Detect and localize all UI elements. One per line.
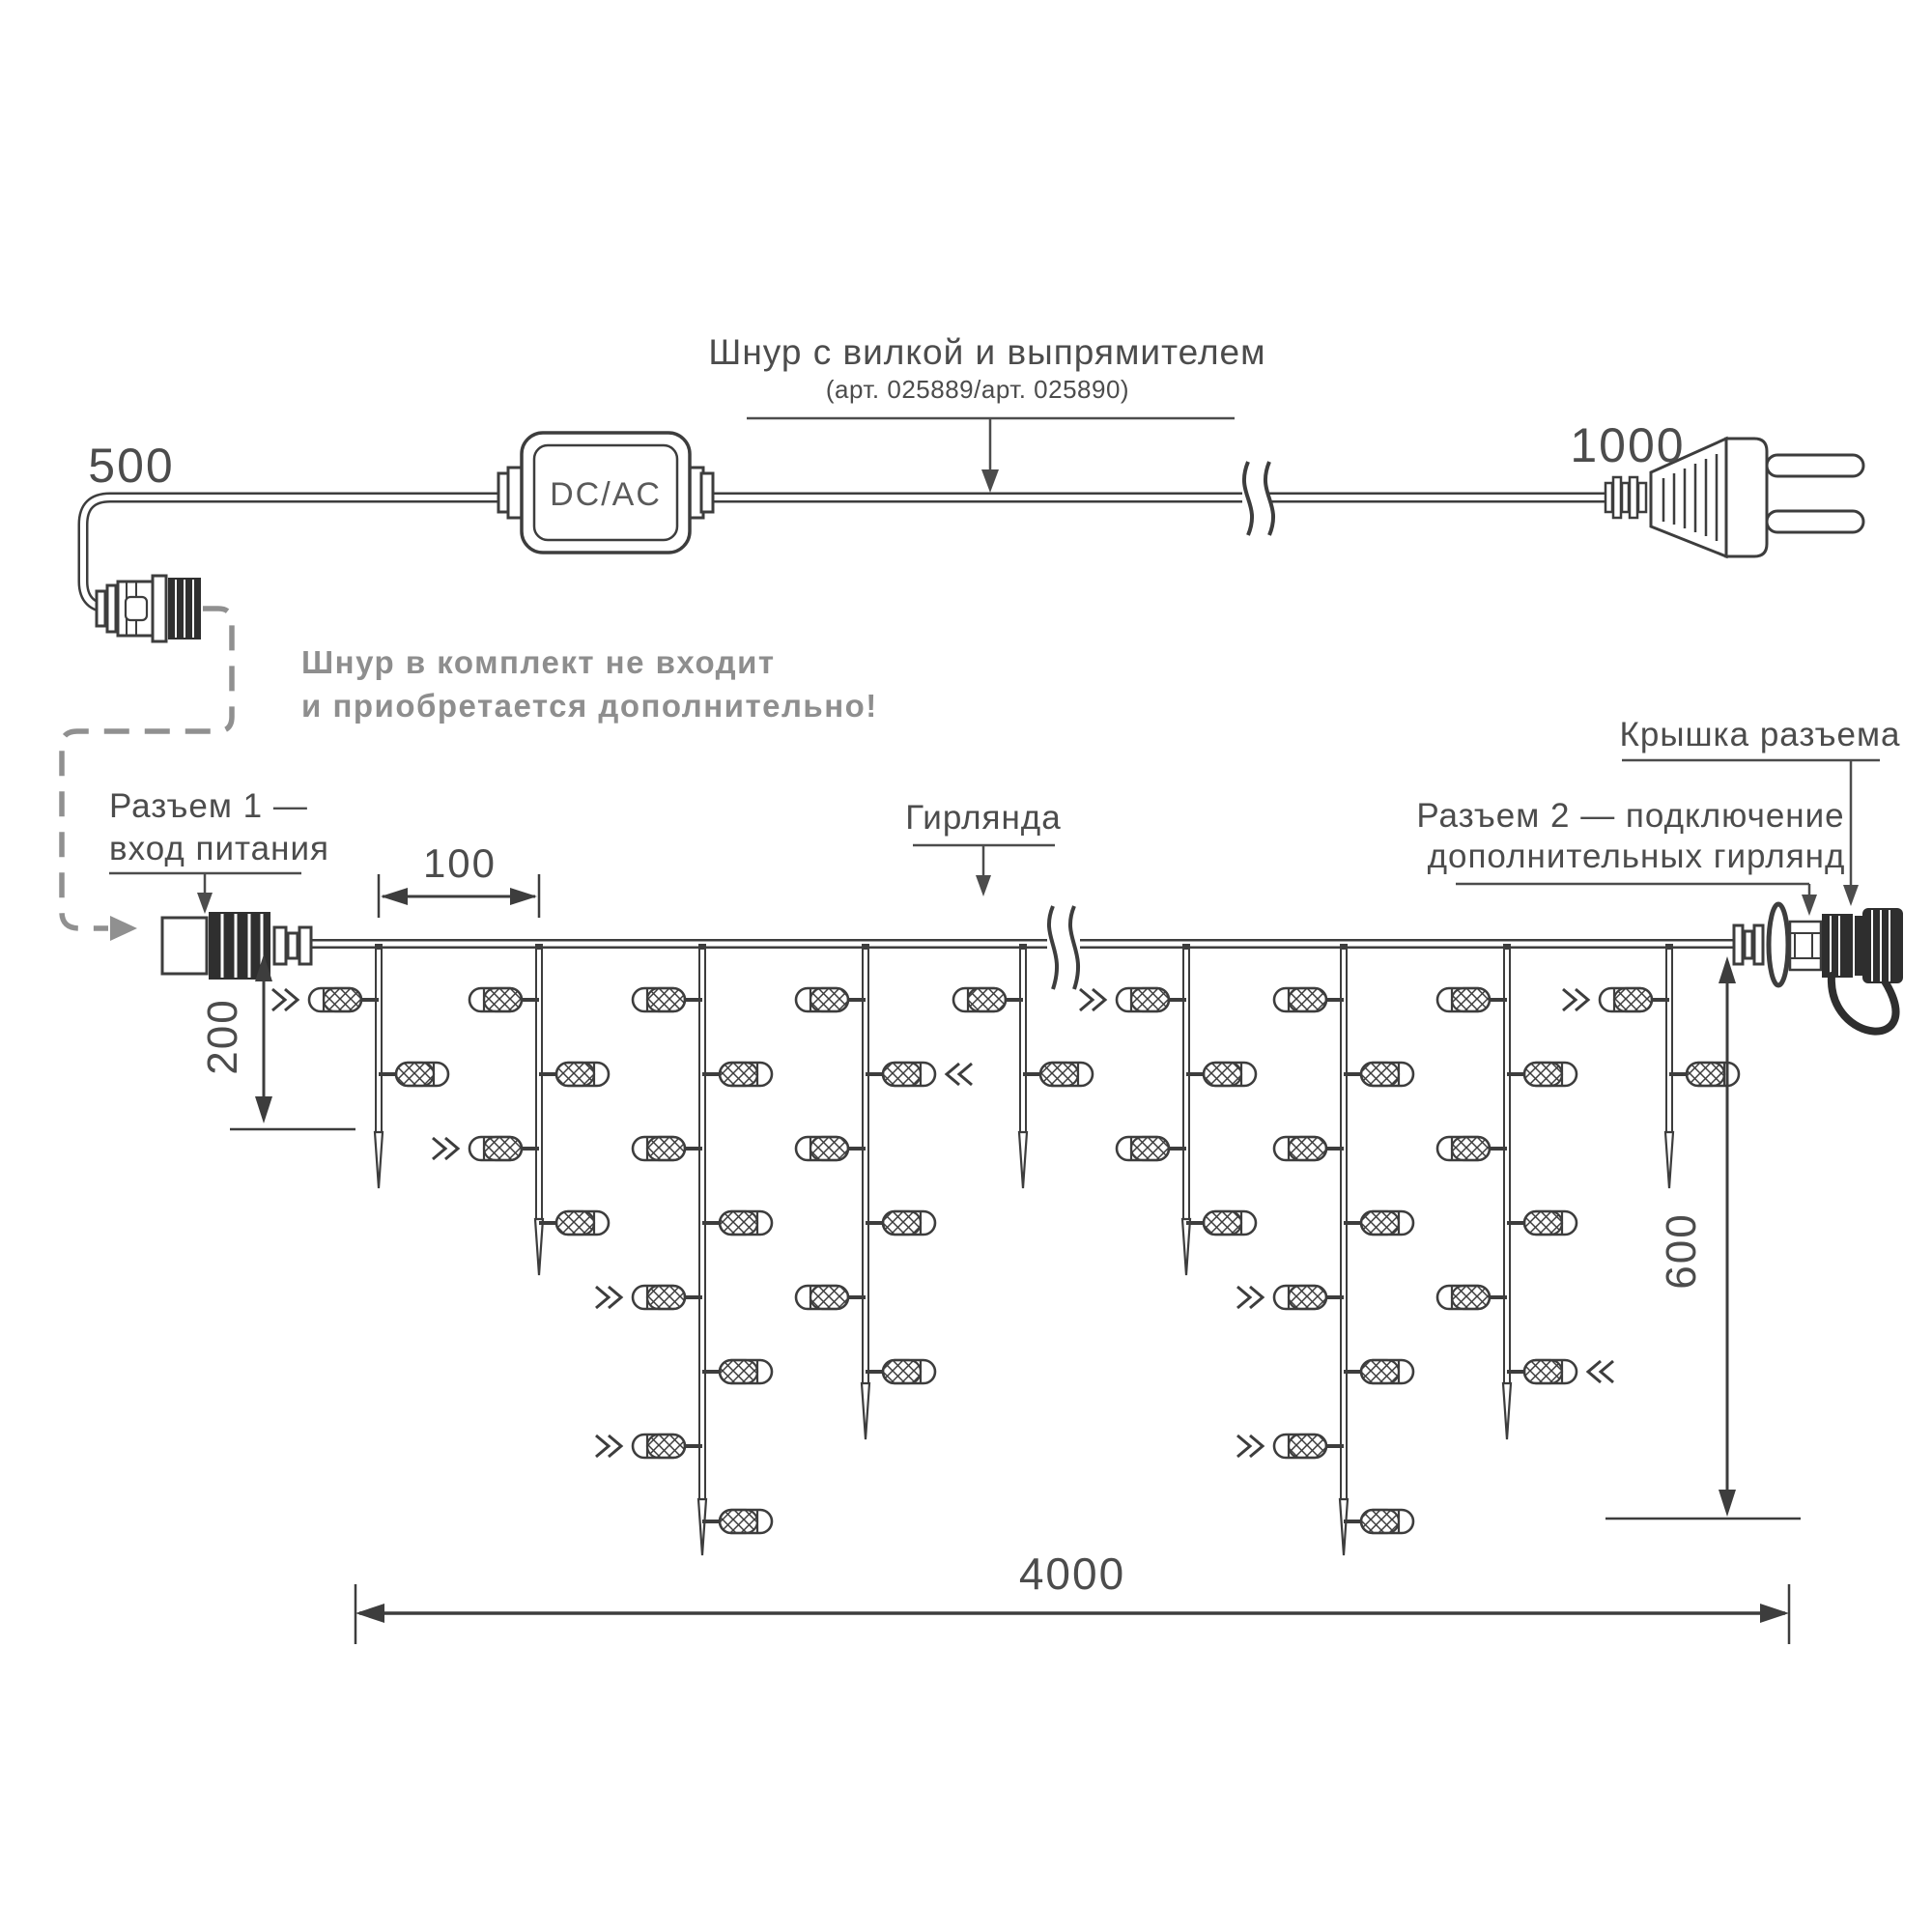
power-cord-assembly: DC/AC [83, 418, 1863, 641]
cord-right-segment [711, 462, 1605, 535]
connector2-label-block: Разъем 2 — подключение дополнительных ги… [1416, 797, 1845, 916]
bulb [1437, 988, 1507, 1011]
bulb [539, 1211, 609, 1235]
drop-tip [535, 1219, 543, 1275]
cord-title: Шнур с вилкой и выпрямителем [708, 332, 1265, 372]
garland-drop [953, 944, 1093, 1188]
garland-drop [1080, 944, 1256, 1275]
connector2-with-cap [1734, 904, 1903, 1032]
bulb [796, 988, 866, 1011]
garland-drops [272, 944, 1739, 1555]
bulb [379, 1063, 448, 1086]
cap-strap [1832, 976, 1896, 1032]
bulb [1437, 1286, 1507, 1309]
cap-label: Крышка разъема [1619, 716, 1900, 753]
bulb [796, 1286, 866, 1309]
dim-600-label: 600 [1658, 1212, 1705, 1289]
drop-tip [1503, 1383, 1511, 1439]
chevron-arrow-icon [1080, 989, 1105, 1010]
drop-tip [375, 1132, 383, 1188]
bulb [1186, 1063, 1256, 1086]
cord-title-block: Шнур с вилкой и выпрямителем (арт. 02588… [708, 332, 1265, 493]
chevron-arrow-icon [433, 1138, 458, 1159]
cord-end-connector [97, 576, 201, 641]
bulb [469, 988, 539, 1011]
bulb [1507, 1360, 1613, 1383]
diagram-canvas: DC/AC [0, 0, 1932, 1932]
bulb [633, 988, 702, 1011]
drop-tip [1340, 1499, 1348, 1555]
bulb [866, 1211, 935, 1235]
drop-tip [1019, 1132, 1027, 1188]
bulb [702, 1360, 772, 1383]
drop-tip [862, 1383, 869, 1439]
bulb [1080, 988, 1186, 1011]
bulb [596, 1286, 702, 1309]
chevron-arrow-icon [1563, 989, 1588, 1010]
bulb [1237, 1286, 1344, 1309]
bulb [1507, 1211, 1577, 1235]
bulb [702, 1063, 772, 1086]
dim-200-label: 200 [199, 998, 246, 1074]
bulb [1274, 1137, 1344, 1160]
garland-label: Гирлянда [905, 799, 1061, 837]
garland-schematic: DC/AC [0, 0, 1932, 1932]
bulb [1437, 1137, 1507, 1160]
bulb [1237, 1435, 1344, 1458]
bulb [1344, 1211, 1413, 1235]
bulb [433, 1137, 539, 1160]
dashed-connection-path [62, 609, 232, 941]
dim-200: 200 [199, 954, 355, 1129]
bulb [596, 1435, 702, 1458]
leader-arrow-down-icon [976, 875, 991, 896]
dim-100-label: 100 [423, 840, 497, 886]
drop-tip [698, 1499, 706, 1555]
bulb [1344, 1360, 1413, 1383]
dcac-label: DC/AC [550, 476, 662, 513]
drop-tip [1665, 1132, 1673, 1188]
dim-600: 600 [1605, 956, 1801, 1519]
bulb [702, 1211, 772, 1235]
chevron-arrow-icon [1588, 1361, 1613, 1382]
garland-assembly [162, 904, 1903, 1555]
bulb [633, 1137, 702, 1160]
bulb [1563, 988, 1669, 1011]
chevron-arrow-icon [596, 1287, 621, 1308]
dashed-arrow-icon [110, 916, 137, 941]
chevron-arrow-icon [1237, 1287, 1263, 1308]
bulb [702, 1510, 772, 1533]
dcac-converter: DC/AC [498, 433, 713, 553]
bulb [866, 1063, 972, 1086]
garland-drop [1237, 944, 1413, 1555]
chevron-arrow-icon [1237, 1435, 1263, 1457]
bulb [1186, 1211, 1256, 1235]
note-line1: Шнур в комплект не входит [301, 644, 776, 680]
connector1-label-line1: Разъем 1 — [109, 787, 308, 825]
bulb [1274, 988, 1344, 1011]
dim-4000-label: 4000 [1019, 1548, 1125, 1599]
note-line2: и приобретается дополнительно! [301, 688, 878, 724]
bulb [796, 1137, 866, 1160]
bulb [953, 988, 1023, 1011]
leader-arrow-down-icon [197, 893, 213, 914]
dim-4000: 4000 [355, 1548, 1789, 1644]
bulb [1117, 1137, 1186, 1160]
connector1-label-block: Разъем 1 — вход питания [109, 787, 329, 914]
garland-drop [1563, 944, 1739, 1188]
leader-arrow-down-icon [981, 469, 999, 493]
connector1-label-line2: вход питания [109, 830, 329, 867]
note-block: Шнур в комплект не входит и приобретаетс… [301, 644, 878, 724]
garland-drop [433, 944, 609, 1275]
chevron-arrow-icon [947, 1064, 972, 1085]
leader-arrow-down-icon [1843, 885, 1859, 906]
cord-subtitle: (арт. 025889/арт. 025890) [826, 375, 1129, 404]
dim-100: 100 [379, 840, 539, 918]
chevron-arrow-icon [596, 1435, 621, 1457]
wire-break-icon [1047, 906, 1080, 989]
bulb [866, 1360, 935, 1383]
garland-drop [796, 944, 972, 1439]
cord-break-icon [1242, 462, 1273, 535]
bulb [1507, 1063, 1577, 1086]
garland-drop [272, 944, 448, 1188]
connector1 [162, 912, 311, 980]
connector2-label-line1: Разъем 2 — подключение [1416, 797, 1844, 835]
bulb [539, 1063, 609, 1086]
connector-cap [1855, 908, 1903, 983]
bulb [272, 988, 379, 1011]
chevron-arrow-icon [272, 989, 298, 1010]
bulb [1023, 1063, 1093, 1086]
drop-tip [1182, 1219, 1190, 1275]
leader-arrow-down-icon [1802, 895, 1817, 916]
garland-drop [1437, 944, 1613, 1439]
garland-drop [596, 944, 772, 1555]
dim-500-label: 500 [88, 439, 174, 493]
garland-label-block: Гирлянда [905, 799, 1061, 896]
dim-1000-label: 1000 [1570, 418, 1685, 472]
bulb [1344, 1063, 1413, 1086]
bulb [1344, 1510, 1413, 1533]
connector2-label-line2: дополнительных гирлянд [1428, 838, 1846, 875]
